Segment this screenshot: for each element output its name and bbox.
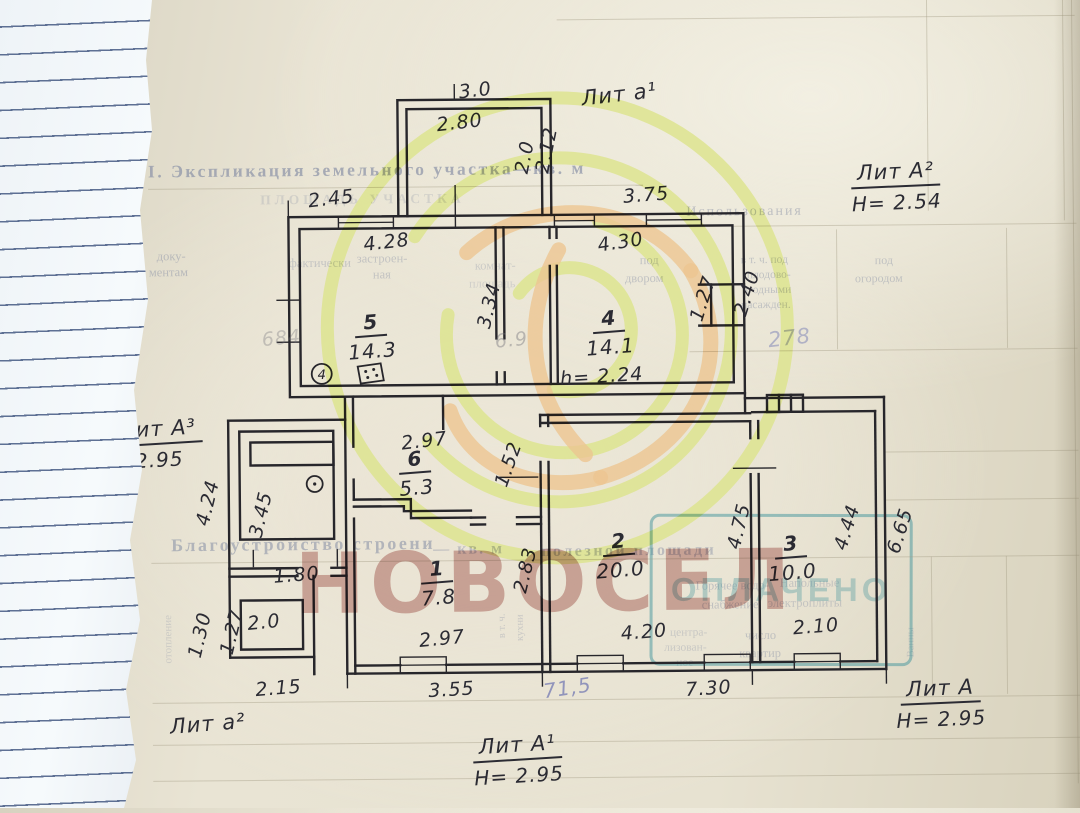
page-edge-shadow [1054,0,1080,808]
document-content: I. Экспликация земельного участка—кв. мП… [0,0,1080,813]
photo-of-bti-floor-plan-page: { "colors":{"ink":"#27262b","hand":"#2b2… [0,0,1080,808]
watermark-novosel-text: НОВОСЕЛ [294,531,796,633]
watermark-outer-ring [325,96,789,560]
watermark-logo [0,0,1080,813]
